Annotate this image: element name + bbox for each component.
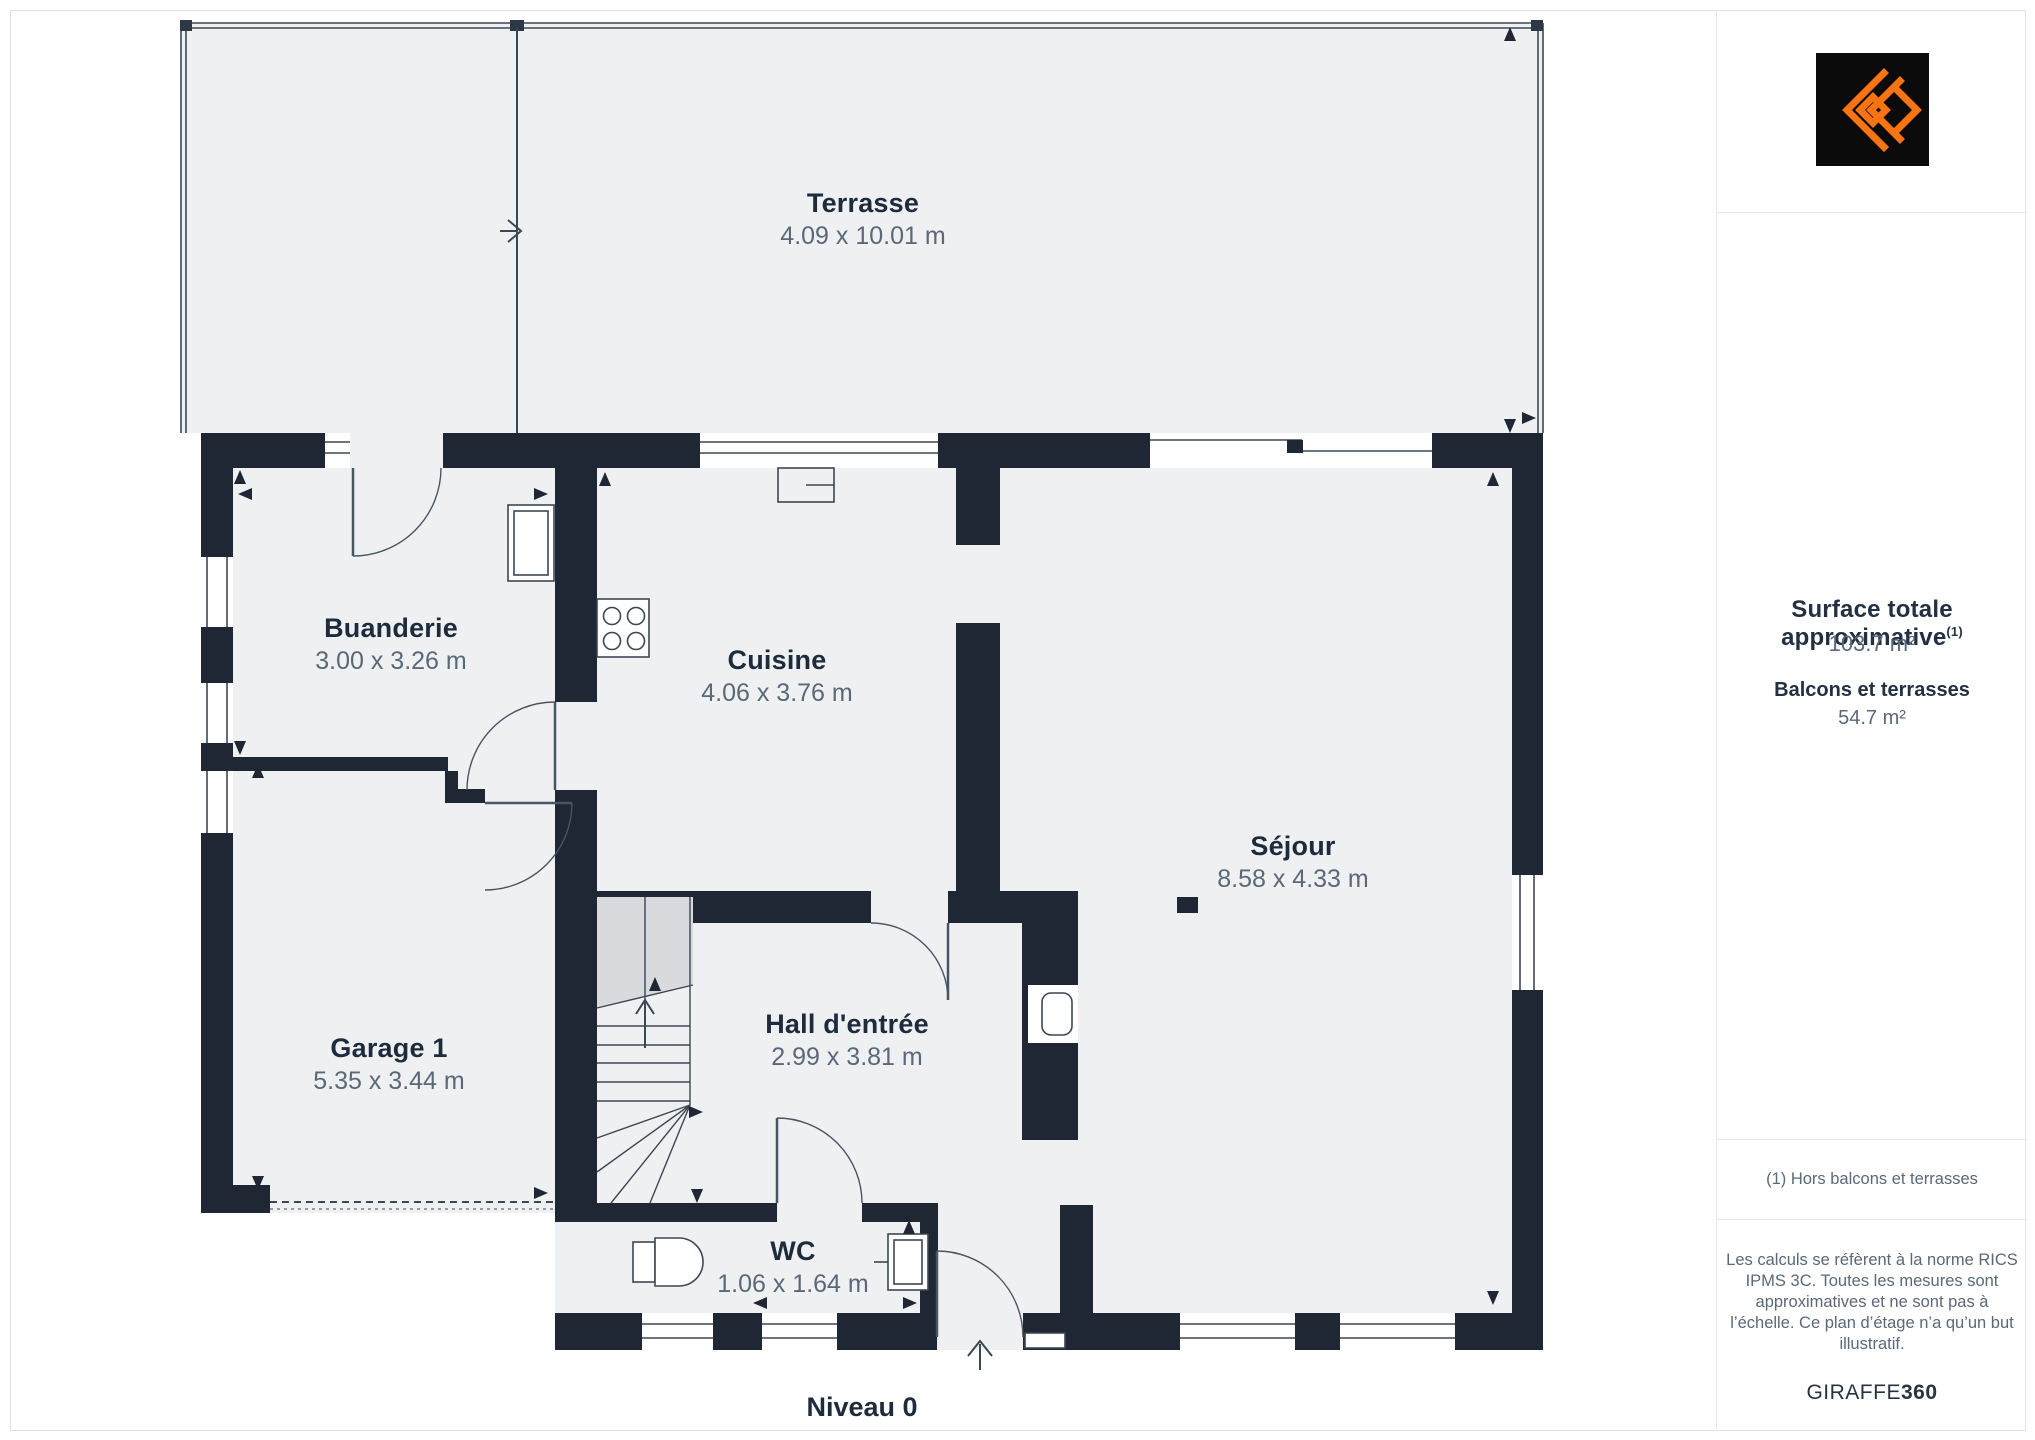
room-name: Buanderie — [315, 612, 466, 645]
room-dimensions: 8.58 x 4.33 m — [1217, 863, 1368, 895]
room-dimensions: 2.99 x 3.81 m — [765, 1041, 929, 1073]
sidebar-divider — [1717, 1219, 2027, 1220]
window — [700, 433, 938, 468]
toilet — [633, 1238, 703, 1286]
driveway-area — [201, 1213, 555, 1353]
wordmark-bold: 360 — [1901, 1381, 1938, 1404]
sliding-door — [1150, 433, 1432, 468]
window — [642, 1313, 713, 1350]
wall-niche — [1028, 985, 1078, 1043]
room-name: Cuisine — [701, 644, 852, 677]
sidebar-divider — [1717, 212, 2027, 213]
room-label-cuisine: Cuisine 4.06 x 3.76 m — [701, 644, 852, 709]
room-name: Hall d'entrée — [765, 1008, 929, 1041]
room-label-terrasse: Terrasse 4.09 x 10.01 m — [780, 187, 945, 252]
window — [1180, 1313, 1295, 1350]
cooktop — [597, 599, 649, 657]
giraffe360-wordmark: GIRAFFE360 — [1717, 1381, 2027, 1405]
room-name: Terrasse — [780, 187, 945, 220]
giraffe360-logo — [1816, 53, 1929, 166]
room-label-sejour: Séjour 8.58 x 4.33 m — [1217, 830, 1368, 895]
window — [325, 433, 350, 468]
disclaimer: Les calculs se réfèrent à la norme RICS … — [1722, 1250, 2022, 1355]
room-dimensions: 4.09 x 10.01 m — [780, 220, 945, 252]
doormat — [1025, 1333, 1065, 1348]
balconies-title: Balcons et terrasses — [1717, 679, 2027, 702]
wordmark-regular: GIRAFFE — [1806, 1381, 1901, 1404]
room-label-wc: WC 1.06 x 1.64 m — [717, 1235, 868, 1300]
room-name: WC — [717, 1235, 868, 1268]
footnote: (1) Hors balcons et terrasses — [1717, 1170, 2027, 1189]
extractor-hood — [778, 468, 834, 502]
floor-plan-page: { "floorplan": { "level_label": "Niveau … — [0, 0, 2035, 1440]
window — [201, 557, 233, 627]
window — [201, 771, 233, 833]
window — [762, 1313, 837, 1350]
sidebar: Surface totale approximative(1) 103.7 m²… — [1716, 10, 2027, 1429]
room-label-buanderie: Buanderie 3.00 x 3.26 m — [315, 612, 466, 677]
surface-value: 103.7 m² — [1717, 631, 2027, 657]
room-dimensions: 5.35 x 3.44 m — [313, 1065, 464, 1097]
room-name: Garage 1 — [313, 1032, 464, 1065]
room-label-garage: Garage 1 5.35 x 3.44 m — [313, 1032, 464, 1097]
room-name: Séjour — [1217, 830, 1368, 863]
sidebar-divider — [1717, 1139, 2027, 1140]
level-label: Niveau 0 — [806, 1392, 917, 1423]
column — [1177, 897, 1198, 913]
room-dimensions: 3.00 x 3.26 m — [315, 645, 466, 677]
balconies-value: 54.7 m² — [1717, 707, 2027, 730]
giraffe360-logo-icon — [1816, 53, 1929, 166]
window — [1340, 1313, 1455, 1350]
window — [1512, 875, 1543, 990]
washing-machine — [508, 505, 554, 581]
room-label-hall: Hall d'entrée 2.99 x 3.81 m — [765, 1008, 929, 1073]
room-dimensions: 4.06 x 3.76 m — [701, 677, 852, 709]
room-dimensions: 1.06 x 1.64 m — [717, 1268, 868, 1300]
window — [201, 683, 233, 743]
